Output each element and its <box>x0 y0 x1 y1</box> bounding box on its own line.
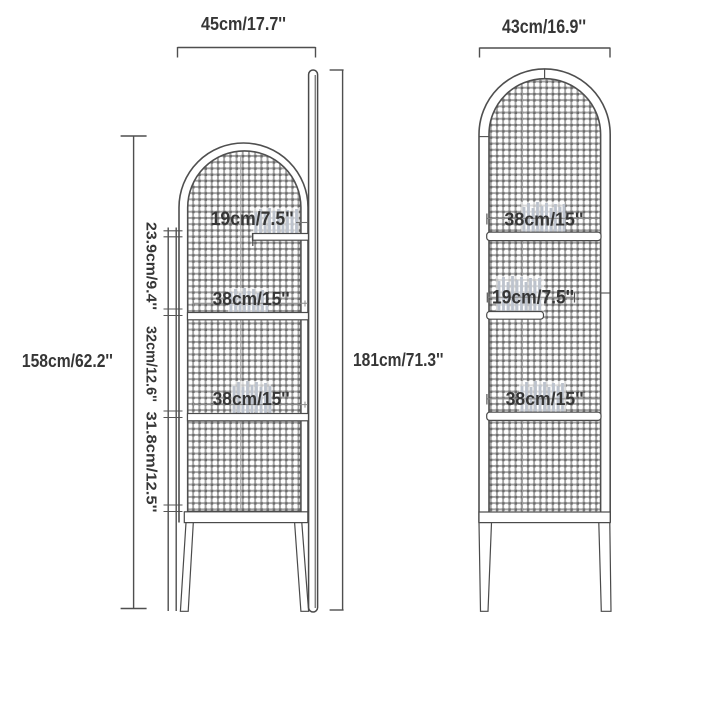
svg-text:31.8cm/12.5'': 31.8cm/12.5'' <box>143 412 160 513</box>
svg-text:38cm/15'': 38cm/15'' <box>213 388 290 409</box>
svg-text:181cm/71.3'': 181cm/71.3'' <box>353 350 444 370</box>
svg-text:38cm/15'': 38cm/15'' <box>504 209 583 230</box>
svg-text:32cm/12.6'': 32cm/12.6'' <box>143 326 160 402</box>
svg-text:45cm/17.7'': 45cm/17.7'' <box>201 14 286 34</box>
svg-text:23.9cm/9.4'': 23.9cm/9.4'' <box>143 222 160 310</box>
svg-text:19cm/7.5'': 19cm/7.5'' <box>492 288 574 309</box>
svg-text:19cm/7.5'': 19cm/7.5'' <box>211 209 294 230</box>
svg-text:43cm/16.9'': 43cm/16.9'' <box>502 17 586 38</box>
svg-text:158cm/62.2'': 158cm/62.2'' <box>22 351 113 371</box>
svg-text:38cm/15'': 38cm/15'' <box>213 288 290 309</box>
svg-text:38cm/15'': 38cm/15'' <box>506 388 584 409</box>
